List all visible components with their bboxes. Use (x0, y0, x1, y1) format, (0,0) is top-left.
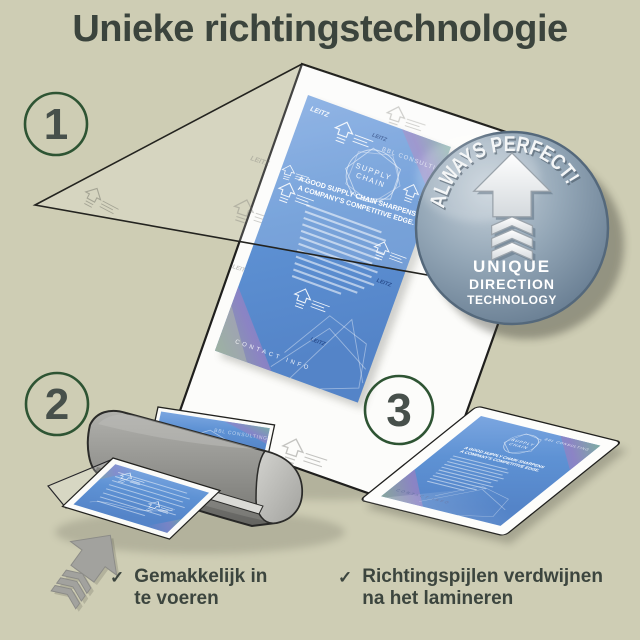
badge-word3: TECHNOLOGY (467, 293, 557, 307)
checklist-item: ✓ Gemakkelijk in te voeren (110, 566, 267, 610)
checklist-text: Richtingspijlen verdwijnen na het lamine… (362, 566, 603, 610)
step1-number: 1 (44, 100, 68, 149)
badge-word1: UNIQUE (473, 257, 551, 276)
check-icon: ✓ (338, 567, 352, 589)
step3-number: 3 (386, 384, 412, 436)
checklist-item: ✓ Richtingspijlen verdwijnen na het lami… (338, 566, 603, 610)
check-icon: ✓ (110, 567, 124, 589)
badge-word2: DIRECTION (469, 276, 555, 292)
step2-number: 2 (45, 380, 69, 429)
checklist-text: Gemakkelijk in te voeren (134, 566, 267, 610)
infographic-canvas: LEITZ LEITZ LEITZ LEITZ LEITZ BBL CONSUL… (0, 0, 640, 640)
